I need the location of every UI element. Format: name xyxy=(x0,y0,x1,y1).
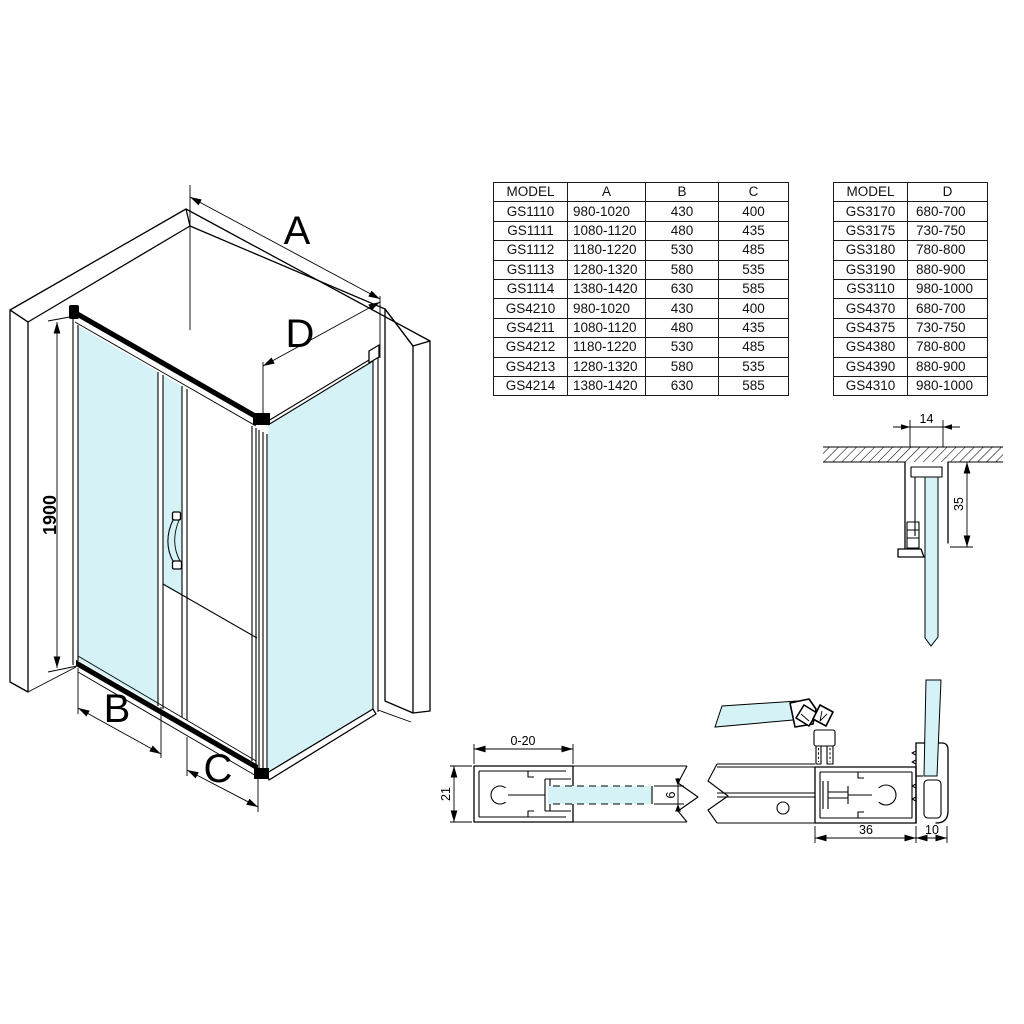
drawing-sheet: A D 1900 B C xyxy=(0,0,1024,1024)
table-cell: 535 xyxy=(719,357,789,376)
rail-internals xyxy=(823,772,896,818)
table-cell: 580 xyxy=(646,357,719,376)
table-cell: 585 xyxy=(719,376,789,395)
table-cell: 435 xyxy=(719,318,789,337)
table-cell: 580 xyxy=(646,260,719,279)
table-cell: 1080-1120 xyxy=(568,318,646,337)
door-magnet-assembly xyxy=(715,699,835,764)
dimensions-table-side: MODELDGS3170680-700GS3175730-750GS318078… xyxy=(833,182,988,396)
table-cell: 530 xyxy=(646,338,719,357)
dim-label-6: 6 xyxy=(664,791,678,798)
table-cell: GS1112 xyxy=(494,241,568,260)
table-cell: 730-750 xyxy=(908,221,988,240)
dim-label-21: 21 xyxy=(439,787,453,801)
table-cell: GS3170 xyxy=(834,202,908,221)
table-header-row: MODELD xyxy=(834,183,988,202)
table-cell: 1380-1420 xyxy=(568,376,646,395)
table-cell: GS3110 xyxy=(834,279,908,298)
table-row: GS4210980-1020430400 xyxy=(494,299,789,318)
table-cell: 1180-1220 xyxy=(568,241,646,260)
table-cell: 530 xyxy=(646,241,719,260)
table-cell: GS4310 xyxy=(834,376,908,395)
detail-corner-profile: 36 10 xyxy=(708,680,948,843)
table-header-cell: C xyxy=(719,183,789,202)
table-cell: 400 xyxy=(719,299,789,318)
table-row: GS3175730-750 xyxy=(834,221,988,240)
table-cell: GS4210 xyxy=(494,299,568,318)
table-header-cell: MODEL xyxy=(834,183,908,202)
table-cell: 1280-1320 xyxy=(568,357,646,376)
table-cell: GS4390 xyxy=(834,357,908,376)
table-header-cell: MODEL xyxy=(494,183,568,202)
dim-label-c: C xyxy=(204,747,233,791)
wall-hatch xyxy=(823,447,1003,462)
table-row: GS11111080-1120480435 xyxy=(494,221,789,240)
table-cell: 980-1020 xyxy=(568,299,646,318)
table-cell: GS3190 xyxy=(834,260,908,279)
table-cell: 980-1000 xyxy=(908,376,988,395)
table-cell: 780-800 xyxy=(908,338,988,357)
table-cell: GS1114 xyxy=(494,279,568,298)
detail-adjust-profile: 0-20 21 6 xyxy=(439,734,698,822)
dim-label-35: 35 xyxy=(952,497,966,511)
dimensions-table-main: MODELABCGS1110980-1020430400GS11111080-1… xyxy=(493,182,789,396)
table-row: GS42111080-1120480435 xyxy=(494,318,789,337)
table-row: GS4390880-900 xyxy=(834,357,988,376)
side-glass-panel xyxy=(267,345,411,780)
table-cell: GS4211 xyxy=(494,318,568,337)
table-cell: 680-700 xyxy=(908,202,988,221)
table-row: GS4370680-700 xyxy=(834,299,988,318)
technical-drawing-svg: A D 1900 B C xyxy=(0,0,1024,1024)
table-cell: GS4380 xyxy=(834,338,908,357)
table-header-row: MODELABC xyxy=(494,183,789,202)
table-cell: 680-700 xyxy=(908,299,988,318)
front-face xyxy=(69,305,270,779)
table-cell: 480 xyxy=(646,318,719,337)
detail-adjust-dims: 0-20 21 6 xyxy=(439,734,684,822)
table-cell: GS4214 xyxy=(494,376,568,395)
table-cell: 880-900 xyxy=(908,357,988,376)
table-cell: GS3180 xyxy=(834,241,908,260)
dim-label-height: 1900 xyxy=(40,495,60,535)
table-row: GS3180780-800 xyxy=(834,241,988,260)
table-cell: 535 xyxy=(719,260,789,279)
table-cell: 630 xyxy=(646,279,719,298)
table-cell: 435 xyxy=(719,221,789,240)
table-row: GS11131280-1320580535 xyxy=(494,260,789,279)
isometric-enclosure-view: A D 1900 B C xyxy=(10,185,430,812)
detail-corner-dims: 36 10 xyxy=(815,823,947,843)
table-cell: GS1110 xyxy=(494,202,568,221)
door-glass-edge-line xyxy=(163,584,257,638)
table-cell: GS3175 xyxy=(834,221,908,240)
table-row: GS42121180-1220530485 xyxy=(494,338,789,357)
table-row: GS4375730-750 xyxy=(834,318,988,337)
wall-bracket xyxy=(898,522,924,557)
table-cell: 980-1000 xyxy=(908,279,988,298)
table-cell: 585 xyxy=(719,279,789,298)
table-row: GS1110980-1020430400 xyxy=(494,202,789,221)
dim-label-10: 10 xyxy=(925,823,939,837)
dim-label-d: D xyxy=(286,312,315,356)
table-row: GS42141380-1420630585 xyxy=(494,376,789,395)
table-cell: 485 xyxy=(719,241,789,260)
dim-label-a: A xyxy=(284,209,311,253)
side-glass-section xyxy=(924,680,941,776)
table-row: GS4310980-1000 xyxy=(834,376,988,395)
fixed-glass-section xyxy=(925,477,938,646)
table-row: GS3170680-700 xyxy=(834,202,988,221)
table-cell: GS4370 xyxy=(834,299,908,318)
dim-label-36: 36 xyxy=(859,823,873,837)
table-row: GS3190880-900 xyxy=(834,260,988,279)
table-cell: 1280-1320 xyxy=(568,260,646,279)
table-header-cell: B xyxy=(646,183,719,202)
table-row: GS3110980-1000 xyxy=(834,279,988,298)
dim-label-14: 14 xyxy=(920,412,934,426)
table-row: GS4380780-800 xyxy=(834,338,988,357)
table-row: GS11121180-1220530485 xyxy=(494,241,789,260)
table-cell: 980-1020 xyxy=(568,202,646,221)
table-header-cell: A xyxy=(568,183,646,202)
table-header-cell: D xyxy=(908,183,988,202)
table-cell: GS1111 xyxy=(494,221,568,240)
table-cell: 480 xyxy=(646,221,719,240)
dim-label-0-20: 0-20 xyxy=(510,734,535,748)
table-cell: 430 xyxy=(646,299,719,318)
table-cell: 1080-1120 xyxy=(568,221,646,240)
adjust-glass xyxy=(548,786,652,804)
table-cell: GS4213 xyxy=(494,357,568,376)
table-cell: 730-750 xyxy=(908,318,988,337)
table-cell: 1180-1220 xyxy=(568,338,646,357)
table-row: GS11141380-1420630585 xyxy=(494,279,789,298)
door-glass-section xyxy=(715,701,797,727)
table-cell: 400 xyxy=(719,202,789,221)
table-cell: GS4375 xyxy=(834,318,908,337)
table-row: GS42131280-1320580535 xyxy=(494,357,789,376)
detail-wall-profile: 14 35 xyxy=(823,412,1003,646)
table-cell: 430 xyxy=(646,202,719,221)
table-cell: GS1113 xyxy=(494,260,568,279)
wall-end-profile xyxy=(912,680,948,823)
table-cell: 485 xyxy=(719,338,789,357)
table-cell: 780-800 xyxy=(908,241,988,260)
dim-label-b: B xyxy=(104,687,131,731)
table-cell: 1380-1420 xyxy=(568,279,646,298)
table-cell: 630 xyxy=(646,376,719,395)
break-symbol xyxy=(678,766,698,822)
table-cell: GS4212 xyxy=(494,338,568,357)
table-cell: 880-900 xyxy=(908,260,988,279)
screw-hole xyxy=(777,802,789,814)
